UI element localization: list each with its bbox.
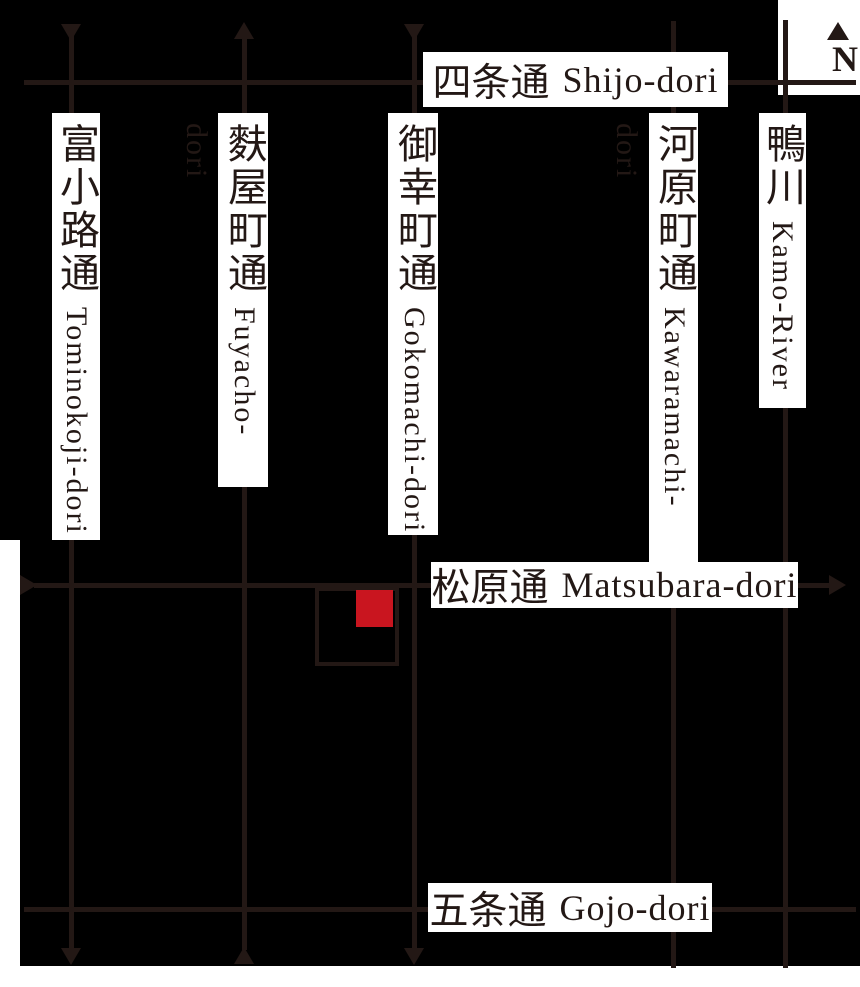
oneway-north-arrow-top-fuyacho xyxy=(234,22,254,39)
label-kanji: 麩屋町通 xyxy=(222,123,267,295)
label-kanji: 御幸町通 xyxy=(392,123,437,295)
bottom-margin xyxy=(0,966,860,987)
label-kanji: 鴨川 xyxy=(760,123,805,209)
label-kanji: 河原町通 xyxy=(652,123,697,295)
label-romaji: Kamo-River xyxy=(766,221,799,391)
oneway-north-arrow-bottom-fuyacho xyxy=(234,947,254,964)
label-romaji: Gokomachi-dori xyxy=(398,307,431,533)
label-romaji: Tominokoji-dori xyxy=(60,307,93,535)
oneway-south-arrow-bottom-gokomachi xyxy=(404,948,424,965)
label-romaji: Matsubara-dori xyxy=(562,564,798,606)
label-kanji: 四条通 xyxy=(432,52,549,108)
left-margin xyxy=(0,540,20,987)
label-matsubara-dori: 松原通Matsubara-dori xyxy=(431,562,798,608)
oneway-east-arrow-left-matsubara xyxy=(20,575,37,595)
label-gokomachi-dori: 御幸町通Gokomachi-dori xyxy=(388,113,438,535)
kyoto-access-map: 富小路通Tominokoji-dori 麩屋町通Fuyacho-dori 御幸町… xyxy=(0,0,860,987)
label-romaji: Gojo-dori xyxy=(560,887,711,929)
oneway-south-arrow-bottom-tominokoji xyxy=(61,948,81,965)
label-gojo-dori: 五条通Gojo-dori xyxy=(428,883,712,932)
label-kanji: 五条通 xyxy=(430,880,547,936)
label-kanji: 松原通 xyxy=(432,557,549,613)
label-kamo-river: 鴨川Kamo-River xyxy=(759,113,806,408)
oneway-south-arrow-top-tominokoji xyxy=(61,24,81,41)
label-kawaramachi-dori: 河原町通Kawaramachi-dori xyxy=(649,113,698,562)
label-tominokoji-dori: 富小路通Tominokoji-dori xyxy=(52,113,100,540)
label-shijo-dori: 四条通Shijo-dori xyxy=(423,52,728,107)
oneway-east-arrow-right-matsubara xyxy=(829,575,846,595)
label-kanji: 富小路通 xyxy=(54,123,99,295)
label-fuyacho-dori: 麩屋町通Fuyacho-dori xyxy=(218,113,268,487)
oneway-south-arrow-top-gokomachi xyxy=(404,24,424,41)
destination-marker xyxy=(356,590,393,627)
label-romaji: Shijo-dori xyxy=(563,59,719,101)
compass-north-label: N xyxy=(832,38,858,80)
